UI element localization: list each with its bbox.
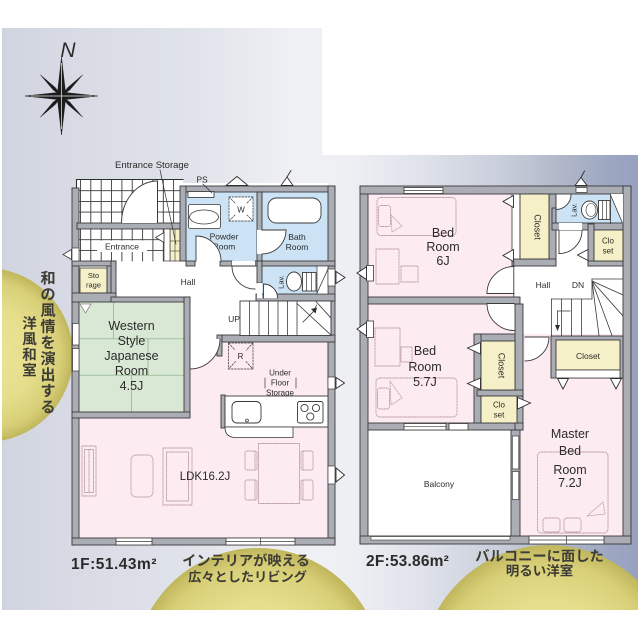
svg-text:Entrance Storage: Entrance Storage	[115, 160, 189, 171]
svg-text:Hall: Hall	[181, 277, 196, 287]
svg-text:Under: Under	[269, 369, 291, 378]
svg-text:W: W	[237, 206, 245, 215]
svg-text:Lav.: Lav.	[277, 275, 286, 289]
svg-text:R: R	[238, 352, 244, 361]
svg-text:Room: Room	[408, 360, 441, 374]
svg-text:Western: Western	[108, 319, 154, 333]
svg-text:set: set	[494, 411, 505, 420]
svg-text:Closet: Closet	[533, 214, 543, 240]
svg-text:Powder: Powder	[210, 232, 239, 242]
svg-text:PS: PS	[196, 175, 208, 185]
svg-text:4.5J: 4.5J	[120, 379, 144, 393]
svg-text:Japanese: Japanese	[104, 349, 158, 363]
svg-text:Sto: Sto	[88, 271, 99, 280]
svg-text:Entrance: Entrance	[105, 242, 139, 252]
svg-text:2F:53.86m²: 2F:53.86m²	[366, 553, 449, 570]
svg-text:set: set	[603, 247, 614, 256]
svg-text:7.2J: 7.2J	[558, 476, 582, 490]
svg-text:Room: Room	[553, 463, 586, 477]
svg-text:1F:51.43m²: 1F:51.43m²	[71, 556, 157, 573]
svg-text:Style: Style	[118, 334, 146, 348]
svg-text:N: N	[60, 39, 76, 62]
svg-text:Bed: Bed	[559, 444, 581, 458]
svg-text:Clo: Clo	[602, 237, 615, 246]
svg-text:Floor: Floor	[271, 379, 290, 388]
svg-text:Closet: Closet	[576, 351, 601, 361]
svg-text:UP: UP	[228, 314, 240, 324]
svg-text:Lav.: Lav.	[570, 203, 579, 217]
svg-text:DN: DN	[572, 280, 584, 290]
svg-text:rage: rage	[86, 281, 101, 290]
svg-text:Room: Room	[286, 242, 309, 252]
svg-text:5.7J: 5.7J	[413, 375, 437, 389]
svg-text:Master: Master	[551, 427, 589, 441]
svg-text:LDK16.2J: LDK16.2J	[180, 471, 231, 483]
svg-text:Room: Room	[115, 364, 148, 378]
svg-text:Bath: Bath	[288, 232, 306, 242]
svg-text:Bed: Bed	[432, 226, 454, 240]
svg-text:6J: 6J	[436, 254, 449, 268]
svg-text:Clo: Clo	[493, 401, 506, 410]
svg-text:Balcony: Balcony	[424, 479, 455, 489]
svg-text:Bed: Bed	[414, 344, 436, 358]
svg-text:Room: Room	[426, 240, 459, 254]
svg-text:Closet: Closet	[497, 353, 507, 379]
svg-text:Hall: Hall	[536, 280, 551, 290]
